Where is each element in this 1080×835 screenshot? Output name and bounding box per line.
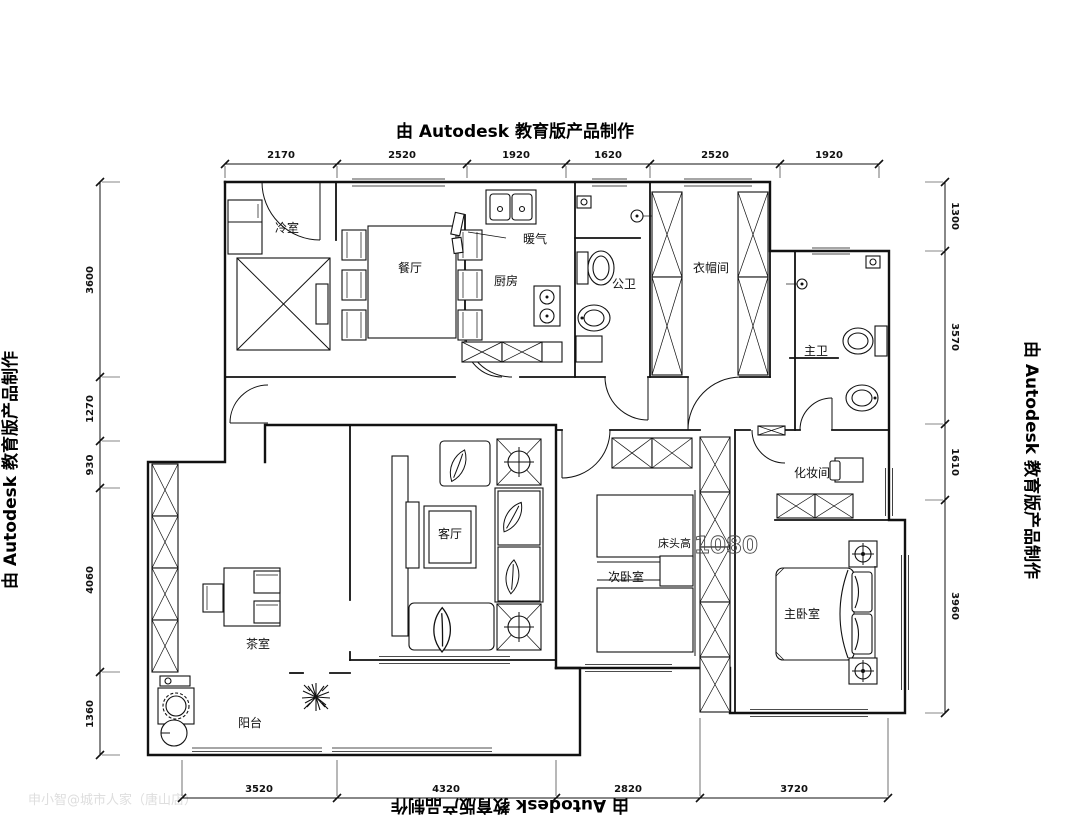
dim-right-0: 1300 <box>949 202 960 230</box>
washing-machine <box>158 688 194 724</box>
tea-cabinet <box>152 464 178 672</box>
balcony-fixtures <box>158 676 330 746</box>
second-bedroom-door <box>562 430 610 478</box>
dimension-top: 2170 2520 1920 1620 2520 1920 <box>221 150 883 178</box>
label-second-bedroom: 次卧室 <box>608 569 644 584</box>
toilet-public <box>577 251 614 285</box>
corridor-door <box>230 385 268 423</box>
end-table-top <box>497 439 541 485</box>
window-makeup-right <box>886 468 893 516</box>
elevator-shaft <box>237 258 330 350</box>
window-top-cloakroom <box>684 179 752 186</box>
makeup-cabinet <box>777 494 853 518</box>
dim-top-0: 2170 <box>267 150 295 161</box>
watermark-right: 由 Autodesk 教育版产品制作 <box>1021 341 1042 579</box>
credit-watermark: 申小智@城市人家（唐山店） <box>28 792 197 808</box>
cloakroom-wardrobes <box>652 192 768 375</box>
floorplan-canvas: 由 Autodesk 教育版产品制作 由 Autodesk 教育版产品制作 由 … <box>0 0 1080 835</box>
dim-left-2: 930 <box>85 455 96 476</box>
window-master-bottom <box>750 710 868 717</box>
dim-top-2: 1920 <box>502 150 530 161</box>
dim-top-5: 1920 <box>815 150 843 161</box>
dim-right-3: 3960 <box>949 592 960 620</box>
window-top-bath <box>592 179 627 186</box>
label-master-bath: 主卫 <box>804 344 828 358</box>
nightstand-top <box>849 541 877 567</box>
master-bath-fixtures <box>786 256 887 411</box>
window-living-bottom <box>379 657 510 664</box>
wardrobe-top <box>612 438 692 468</box>
dim-left-1: 1270 <box>85 395 96 423</box>
living-room-furniture <box>392 439 543 652</box>
label-kitchen: 厨房 <box>494 273 518 288</box>
label-cold-room: 冷室 <box>275 220 299 235</box>
stove <box>534 286 560 326</box>
wardrobe-column <box>700 437 730 712</box>
label-master-bedroom: 主卧室 <box>784 606 820 621</box>
end-table-bottom <box>497 604 541 650</box>
public-bath-door <box>605 377 648 420</box>
nightstand-bottom <box>849 658 877 684</box>
dim-bottom-3: 3720 <box>780 784 808 795</box>
label-living: 客厅 <box>438 526 462 541</box>
armchair <box>440 441 490 486</box>
balcony-sink <box>161 720 187 746</box>
makeup-desk <box>830 458 863 482</box>
toilet-master <box>843 326 887 356</box>
dim-left-3: 4060 <box>85 566 96 594</box>
dim-bottom-2: 2820 <box>614 784 642 795</box>
dim-left-0: 3600 <box>85 266 96 294</box>
label-public-bath: 公卫 <box>612 277 636 291</box>
label-bed-head-value: 1080 <box>694 533 758 559</box>
cloakroom-door <box>688 377 740 430</box>
window-master-right <box>902 555 909 690</box>
label-bed-head-note: 床头高 <box>658 536 691 550</box>
dimension-right: 1300 3570 1610 3960 <box>925 178 960 717</box>
watermark-left: 由 Autodesk 教育版产品制作 <box>0 351 21 589</box>
window-balcony-bottom <box>192 748 492 752</box>
dimension-bottom: 3520 4320 2820 3720 <box>178 718 892 802</box>
dim-top-1: 2520 <box>388 150 416 161</box>
dim-top-3: 1620 <box>594 150 622 161</box>
label-tea-room: 茶室 <box>246 636 270 651</box>
master-suite-door <box>752 426 785 463</box>
dim-bottom-0: 3520 <box>245 784 273 795</box>
sofa <box>495 488 543 602</box>
window-secondbed-bottom <box>585 665 672 672</box>
tea-table-set <box>203 568 280 626</box>
dim-top-4: 2520 <box>701 150 729 161</box>
label-balcony: 阳台 <box>238 715 262 730</box>
label-dining: 餐厅 <box>398 260 422 275</box>
dimension-left: 3600 1270 930 4060 1360 <box>85 178 120 759</box>
master-bath-door <box>800 398 832 430</box>
floorplan-svg: 由 Autodesk 教育版产品制作 由 Autodesk 教育版产品制作 由 … <box>0 0 1080 835</box>
label-cloakroom: 衣帽间 <box>693 260 729 275</box>
dim-right-1: 3570 <box>949 323 960 351</box>
dim-right-2: 1610 <box>949 448 960 476</box>
dim-left-4: 1360 <box>85 700 96 728</box>
label-radiator: 暖气 <box>523 231 547 246</box>
tv <box>406 502 419 568</box>
sink-public <box>578 305 610 331</box>
kitchen-counter <box>462 342 562 362</box>
window-masterbath-top <box>812 248 850 254</box>
label-makeup-room: 化妆间 <box>794 466 830 480</box>
plant <box>302 683 330 711</box>
daybed <box>409 603 494 652</box>
sink-master <box>846 385 878 411</box>
watermark-top: 由 Autodesk 教育版产品制作 <box>396 121 634 142</box>
window-top-dining <box>352 179 445 186</box>
dim-bottom-1: 4320 <box>432 784 460 795</box>
cold-room-fridge <box>228 200 262 254</box>
